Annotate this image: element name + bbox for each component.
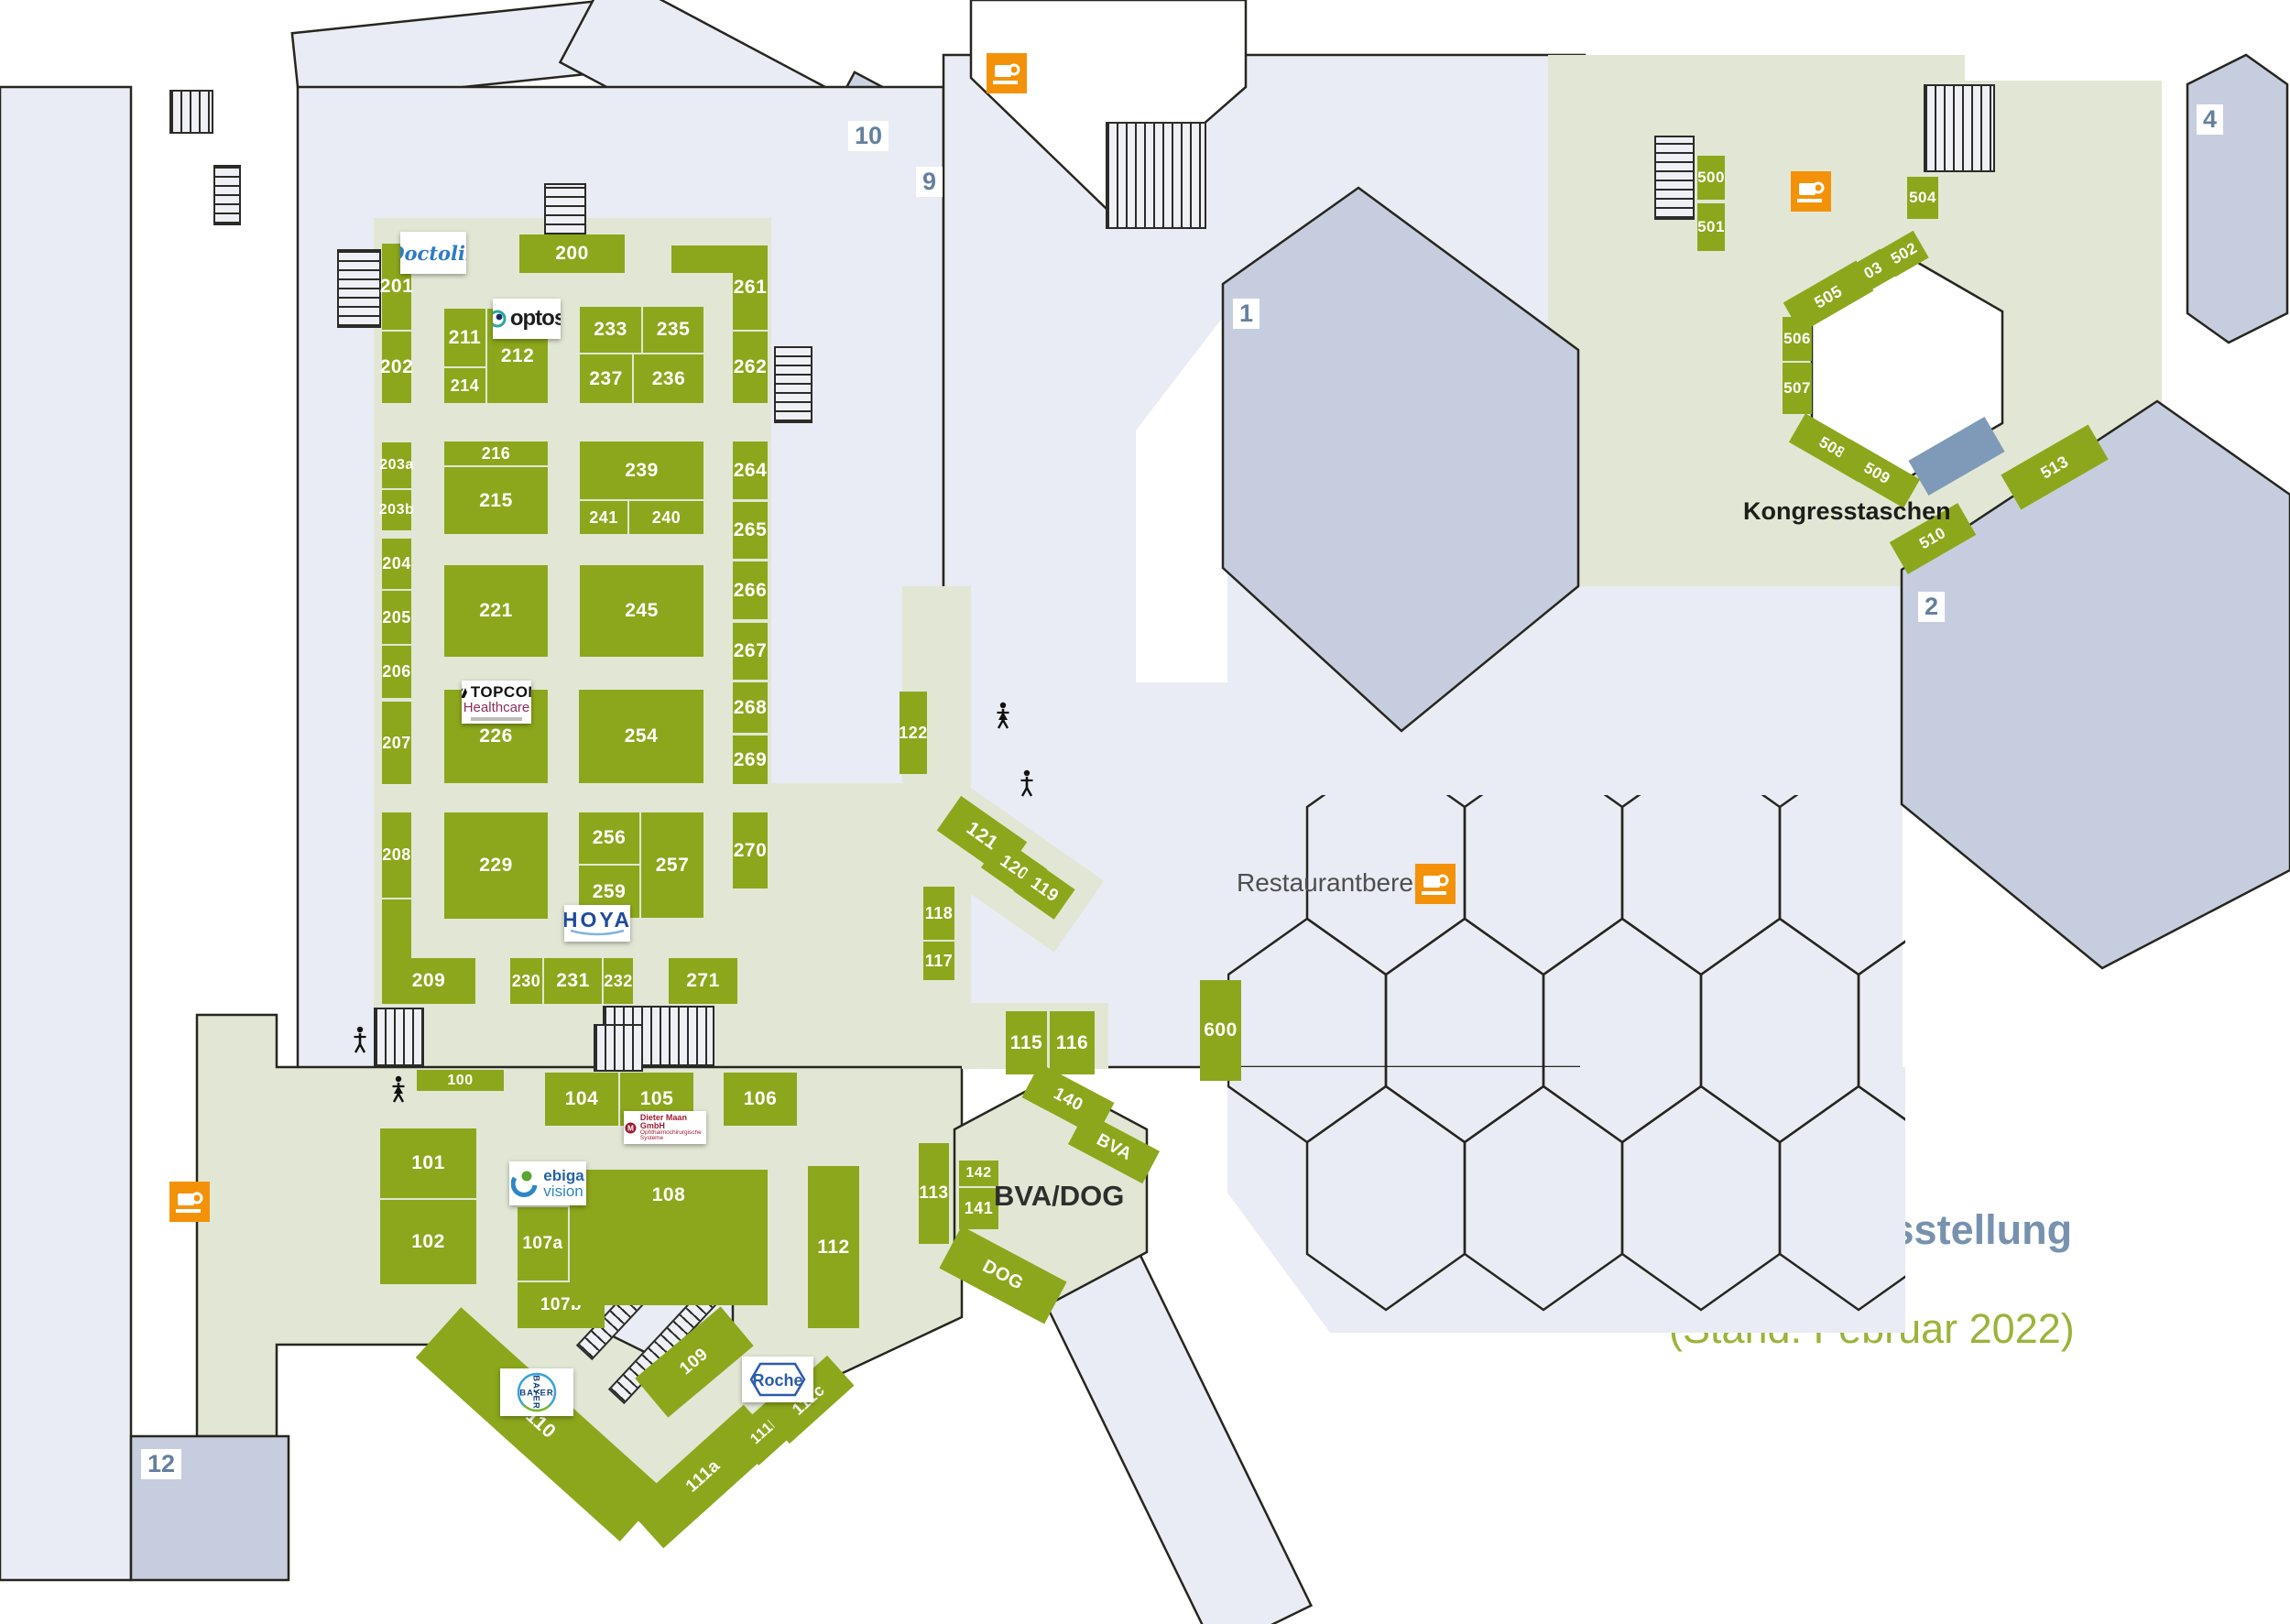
hoya-logo: HOYA (564, 905, 630, 942)
booth-254: 254 (579, 690, 703, 783)
roche-logo: Roche (742, 1357, 813, 1402)
booth-203a: 203a (382, 442, 411, 488)
maan-wordmark: Dieter Maan GmbH (640, 1114, 705, 1130)
booth-245: 245 (580, 565, 703, 657)
booth-207: 207 (382, 702, 411, 784)
stairs-icon (213, 165, 241, 225)
booth-256: 256 (579, 812, 639, 864)
booth-236: 236 (634, 354, 703, 403)
left-corridor (0, 87, 131, 1580)
booth-230: 230 (510, 958, 542, 1004)
wc-person-icon (1019, 769, 1035, 797)
ebiga-wordmark: ebiga (543, 1168, 583, 1183)
booth-231: 231 (544, 958, 602, 1004)
booth-107a: 107a (518, 1207, 568, 1281)
topcon-mark-icon (462, 685, 468, 698)
coffee-icon (987, 53, 1027, 93)
hall-4 (2187, 55, 2287, 343)
maan-m-icon: M (625, 1120, 637, 1136)
roche-hexagon-icon: Roche (744, 1358, 812, 1401)
stairs-icon (1106, 122, 1206, 229)
booth-208: 208 (382, 812, 411, 898)
booth-117: 117 (923, 942, 954, 980)
hall-label-1: 1 (1233, 299, 1259, 329)
wc-person-icon (390, 1075, 407, 1103)
booth-232: 232 (604, 958, 633, 1004)
booth-215: 215 (444, 467, 548, 534)
booth-101: 101 (380, 1128, 476, 1198)
svg-text:BAYER: BAYER (531, 1375, 541, 1409)
coffee-icon (1791, 171, 1831, 212)
stairs-icon (1924, 84, 1995, 172)
booth-205: 205 (382, 591, 411, 644)
hall-label-12: 12 (141, 1449, 181, 1479)
booth-264: 264 (733, 441, 768, 499)
coffee-icon (169, 1182, 210, 1222)
booth-102: 102 (380, 1200, 476, 1284)
booth-600: 600 (1200, 980, 1241, 1081)
booth-200: 200 (519, 234, 625, 273)
doctolib-logo: Doctolib (400, 232, 466, 274)
optos-eye-icon (493, 310, 507, 328)
booth-141: 141 (959, 1188, 998, 1229)
svg-text:Roche: Roche (752, 1371, 802, 1390)
booth-113: 113 (919, 1143, 949, 1244)
booth-241: 241 (580, 501, 627, 534)
notch-topright (1965, 0, 2189, 81)
booth-266: 266 (733, 561, 768, 619)
topcon-logo: TOPCON Healthcare (462, 681, 531, 724)
hall-label-4: 4 (2197, 104, 2223, 135)
booth-233: 233 (580, 307, 641, 353)
kongresstaschen-label: Kongresstaschen (1743, 499, 1951, 524)
booth-267: 267 (733, 623, 768, 680)
booth-268: 268 (733, 682, 768, 733)
booth-271: 271 (669, 958, 737, 1004)
booth-112: 112 (808, 1166, 859, 1328)
booth-257: 257 (641, 812, 703, 918)
map-background (0, 0, 2290, 1624)
bva-dog-label: BVA/DOG (994, 1182, 1124, 1210)
hall-label-10: 10 (848, 121, 889, 151)
topcon-wordmark: TOPCON (471, 684, 531, 700)
booth-269: 269 (733, 736, 768, 784)
floor-passage-east (769, 783, 902, 1067)
ebiga-logo: ebiga vision (509, 1161, 586, 1205)
booth-203b: 203b (382, 490, 411, 530)
booth-237: 237 (580, 354, 632, 403)
booth-142: 142 (959, 1161, 998, 1186)
doctolib-wordmark: Doctolib (400, 244, 466, 263)
booth-270: 270 (733, 812, 768, 888)
wc-person-icon (352, 1026, 368, 1053)
booth-239: 239 (580, 441, 703, 499)
booth-100: 100 (417, 1070, 504, 1091)
booth-235: 235 (643, 307, 703, 353)
booth-118: 118 (923, 887, 954, 940)
booth-265: 265 (733, 502, 768, 559)
wc-person-icon (995, 702, 1011, 729)
bayer-cross-icon: BAYER BAYER (516, 1371, 558, 1413)
optos-logo: optos (493, 299, 561, 339)
vision-wordmark: vision (543, 1183, 583, 1199)
booth-106: 106 (724, 1073, 797, 1126)
booth-202: 202 (382, 332, 411, 403)
booth-504: 504 (1907, 177, 1938, 219)
south-corridor (1043, 1251, 1312, 1624)
stairs-icon (594, 1024, 643, 1072)
booth-segment (671, 245, 736, 273)
hoya-arc (568, 929, 627, 937)
booth-116: 116 (1050, 1011, 1095, 1074)
booth-261: 261 (733, 245, 768, 330)
booth-204: 204 (382, 539, 411, 589)
booth-216: 216 (444, 441, 548, 465)
hoya-wordmark: HOYA (564, 910, 630, 931)
booth-206: 206 (382, 646, 411, 698)
east-corridor (1580, 586, 1903, 1067)
booth-214: 214 (444, 368, 485, 403)
stairs-icon (374, 1008, 424, 1066)
stairs-icon (774, 346, 812, 423)
svg-text:M: M (627, 1123, 634, 1132)
booth-507: 507 (1783, 363, 1812, 414)
optos-wordmark: optos (510, 308, 561, 330)
booth-506: 506 (1783, 317, 1812, 361)
maan-logo: M Dieter Maan GmbH Ophthalmochirurgische… (624, 1111, 706, 1144)
booth-500: 500 (1697, 156, 1725, 200)
hall-label-9: 9 (916, 167, 943, 197)
booth-122: 122 (900, 692, 927, 774)
booth-108: 108 (570, 1170, 768, 1305)
topcon-healthcare-wordmark: Healthcare (463, 701, 530, 714)
booth-262: 262 (733, 332, 768, 403)
booth-104: 104 (545, 1073, 618, 1126)
booth-501: 501 (1697, 203, 1725, 251)
bayer-logo: BAYER BAYER (500, 1368, 573, 1416)
booth-240: 240 (629, 501, 703, 534)
topcon-tagline-bar (471, 717, 522, 721)
booth-229: 229 (444, 812, 548, 919)
hall-label-2: 2 (1918, 592, 1945, 622)
ebiga-icon (511, 1169, 539, 1198)
booth-209: 209 (382, 958, 475, 1004)
coffee-icon (1415, 864, 1456, 904)
stairs-icon (169, 90, 213, 134)
stairs-icon (337, 249, 381, 328)
booth-211: 211 (444, 309, 485, 366)
booth-221: 221 (444, 565, 548, 657)
stairs-icon (1654, 136, 1695, 220)
maan-subline: Ophthalmochirurgische Systeme (640, 1130, 705, 1142)
floor-plan: AAD 2022 Industrieausstellung Standplan … (0, 0, 2290, 1624)
